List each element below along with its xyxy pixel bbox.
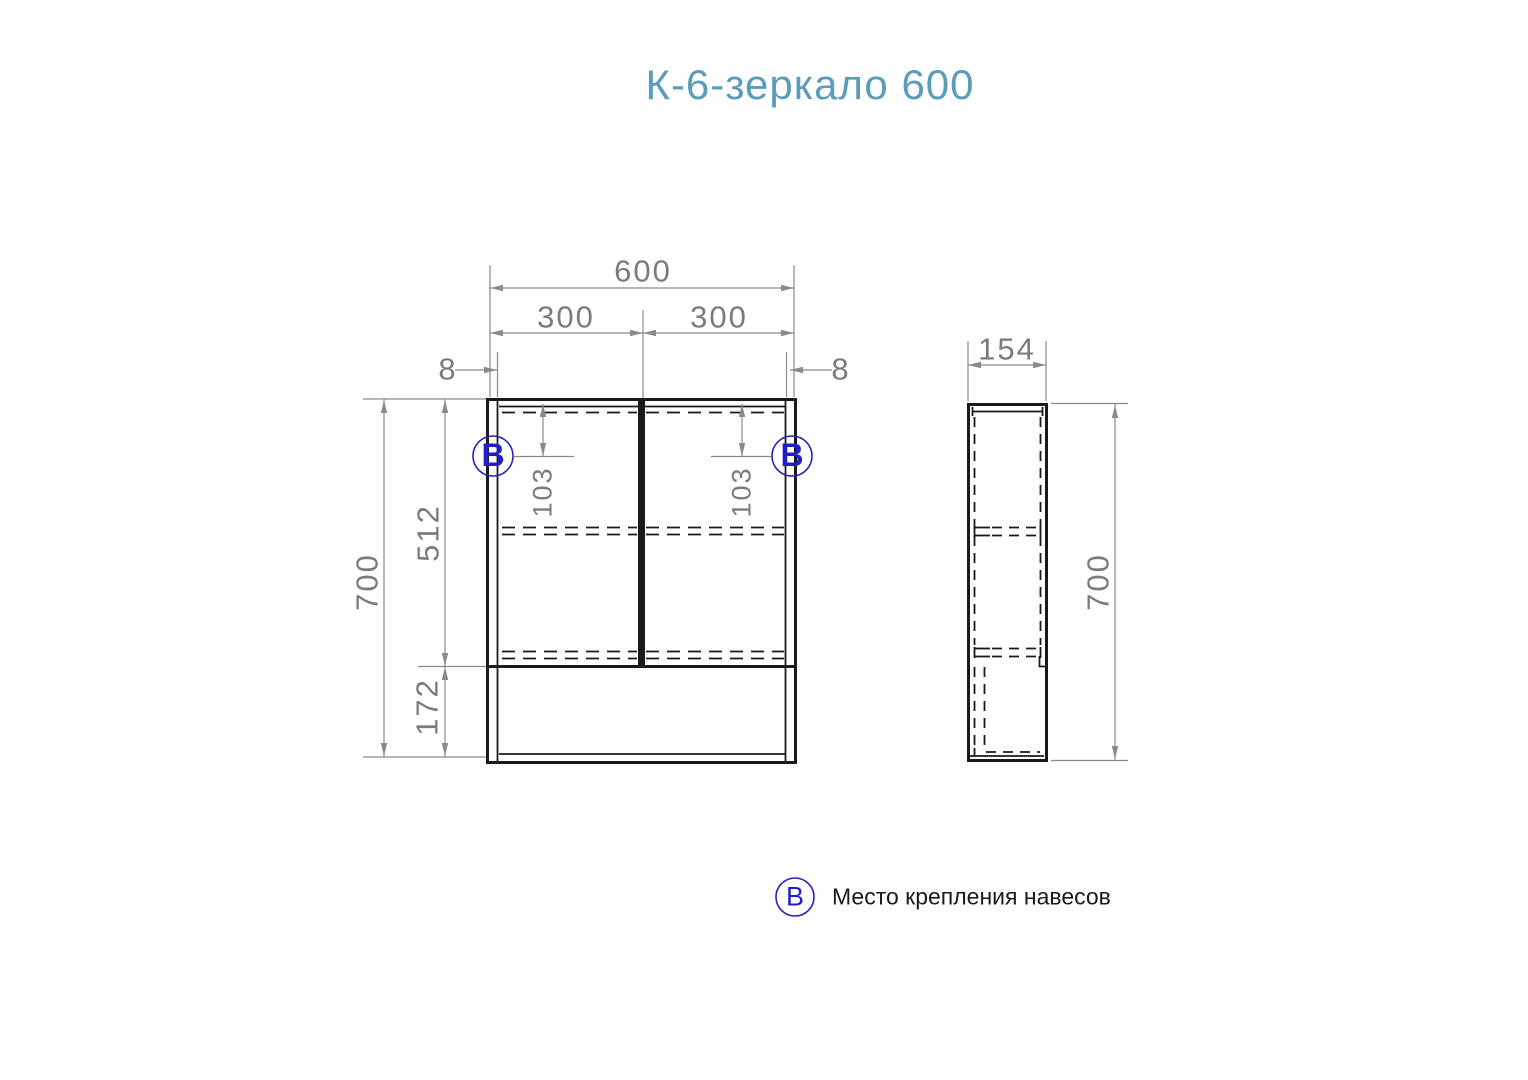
dim-upper-section-height: 512: [413, 504, 444, 562]
dim-total-width: 600: [614, 256, 672, 287]
front-view-drawing: [488, 400, 796, 763]
dim-mount-offset-left: 103: [530, 466, 557, 517]
dim-depth: 154: [978, 334, 1036, 365]
legend-marker-symbol: В: [786, 884, 804, 911]
dim-side-panel-left: 8: [438, 354, 457, 385]
dim-door-width-right: 300: [690, 302, 748, 333]
drawing-canvas: К-6-зеркало 600 600 300 300 8 8 700 512 …: [0, 0, 1528, 1080]
legend-text: Место крепления навесов: [832, 886, 1111, 909]
dim-mount-offset-right: 103: [729, 466, 756, 517]
page-title: К-6-зеркало 600: [645, 64, 974, 106]
drawing-svg: [0, 0, 1528, 1080]
dim-door-width-left: 300: [537, 302, 595, 333]
dim-lower-section-height: 172: [412, 678, 443, 736]
side-view-drawing: [969, 405, 1047, 761]
mount-marker-left-symbol: В: [481, 439, 504, 471]
dim-total-height: 700: [352, 553, 383, 611]
dim-side-total-height: 700: [1083, 553, 1114, 611]
mount-marker-right-symbol: В: [780, 439, 803, 471]
dim-side-panel-right: 8: [831, 354, 850, 385]
side-outer-body: [969, 405, 1047, 761]
